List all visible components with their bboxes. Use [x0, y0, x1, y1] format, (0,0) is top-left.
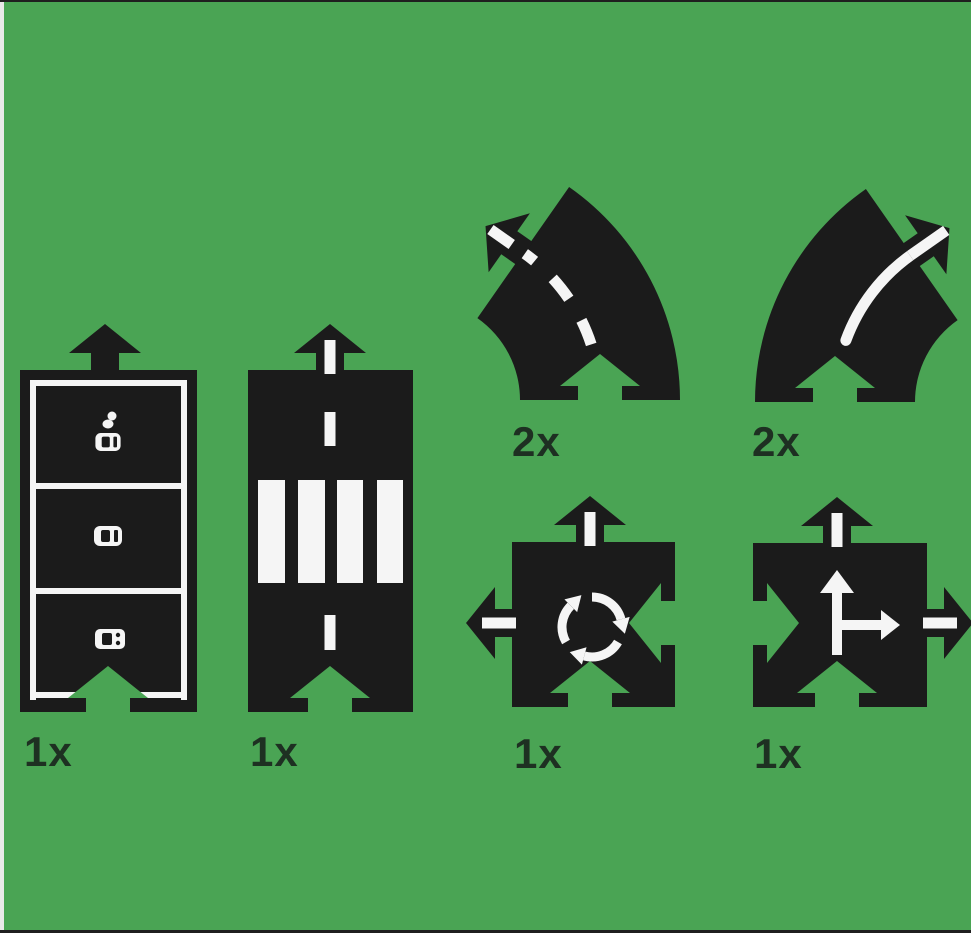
parking-piece — [18, 322, 203, 717]
curved-road-body — [755, 189, 958, 402]
curved-road-body — [477, 187, 680, 400]
curve-solid-piece — [745, 157, 971, 407]
left-edge-strip — [0, 0, 4, 933]
count-label-crossing: 1x — [250, 731, 299, 773]
pedestrian-crossing-piece — [246, 322, 416, 717]
count-label-roundabout: 1x — [514, 733, 563, 775]
count-label-curve-solid: 2x — [752, 421, 801, 463]
toy-road-pieces-diagram: 1x 1x 2x 2x 1x 1x — [0, 0, 971, 933]
car-icon — [95, 629, 125, 649]
t-junction-piece — [745, 492, 971, 722]
curve-dashed-piece — [450, 155, 690, 405]
count-label-parking: 1x — [24, 731, 73, 773]
count-label-curve-dashed: 2x — [512, 421, 561, 463]
count-label-t-junction: 1x — [754, 733, 803, 775]
top-edge-line — [0, 0, 971, 2]
connector-arrow-icon — [923, 587, 971, 659]
car-icon — [94, 526, 122, 546]
connector-arrow-icon — [801, 497, 873, 547]
connector-arrow-icon — [554, 496, 626, 546]
roundabout-piece — [460, 492, 690, 722]
connector-arrow-icon — [294, 324, 366, 374]
connector-arrow-icon — [69, 324, 141, 372]
connector-arrow-icon — [466, 587, 516, 659]
